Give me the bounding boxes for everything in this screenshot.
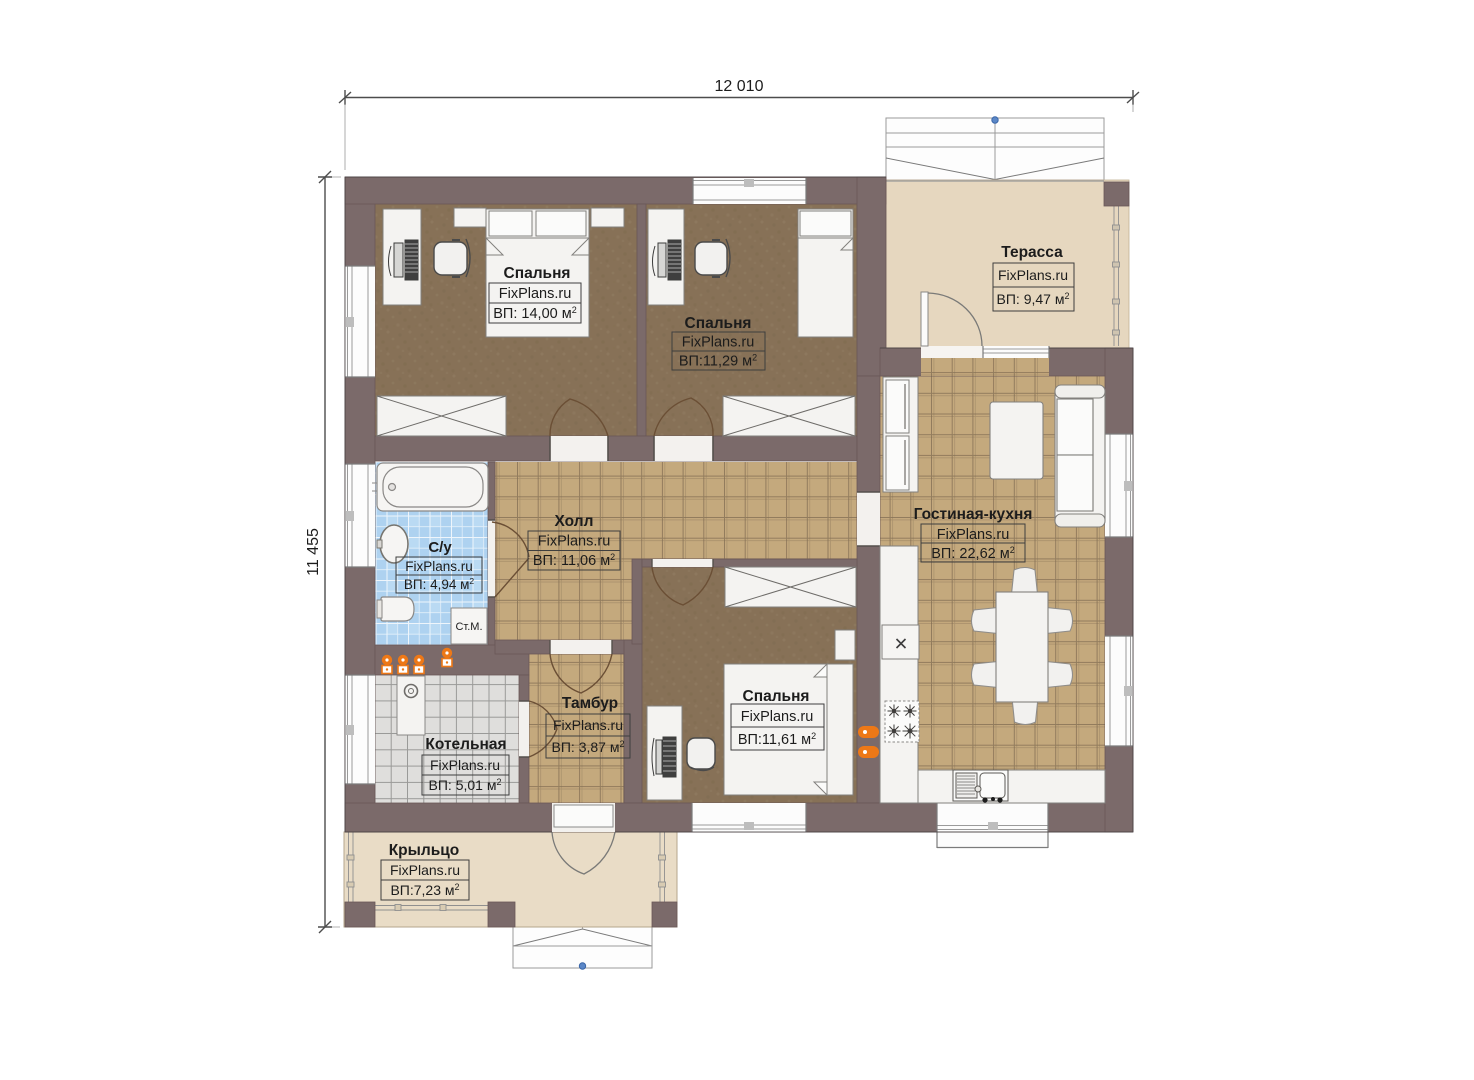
svg-text:ВП:11,29 м2: ВП:11,29 м2 (679, 353, 757, 370)
svg-text:FixPlans.ru: FixPlans.ru (390, 862, 460, 878)
svg-text:11 455: 11 455 (305, 528, 322, 576)
svg-text:ВП: 4,94 м2: ВП: 4,94 м2 (404, 576, 475, 592)
svg-text:Тамбур: Тамбур (562, 695, 618, 712)
svg-text:FixPlans.ru: FixPlans.ru (553, 717, 623, 733)
svg-text:Терасса: Терасса (1001, 244, 1063, 261)
svg-text:FixPlans.ru: FixPlans.ru (998, 267, 1068, 283)
svg-text:FixPlans.ru: FixPlans.ru (430, 757, 500, 773)
svg-text:Холл: Холл (555, 513, 594, 530)
svg-text:Спальня: Спальня (504, 265, 571, 282)
svg-text:Спальня: Спальня (685, 315, 752, 332)
svg-text:ВП: 14,00 м2: ВП: 14,00 м2 (493, 305, 576, 322)
svg-text:ВП:7,23 м2: ВП:7,23 м2 (390, 882, 459, 898)
svg-text:С/у: С/у (428, 539, 452, 556)
svg-text:Котельная: Котельная (425, 736, 506, 753)
svg-text:FixPlans.ru: FixPlans.ru (937, 527, 1010, 543)
svg-text:ВП:11,61 м2: ВП:11,61 м2 (738, 731, 816, 748)
svg-text:FixPlans.ru: FixPlans.ru (405, 559, 473, 574)
svg-text:ВП: 11,06 м2: ВП: 11,06 м2 (533, 552, 615, 569)
svg-text:12 010: 12 010 (715, 78, 764, 95)
svg-text:FixPlans.ru: FixPlans.ru (538, 534, 611, 550)
svg-text:Спальня: Спальня (743, 688, 810, 705)
svg-text:ВП: 22,62 м2: ВП: 22,62 м2 (931, 545, 1014, 562)
svg-text:Ст.М.: Ст.М. (455, 621, 482, 633)
svg-text:FixPlans.ru: FixPlans.ru (741, 709, 814, 725)
svg-text:ВП: 9,47 м2: ВП: 9,47 м2 (997, 291, 1070, 307)
svg-text:Гостиная-кухня: Гостиная-кухня (914, 506, 1033, 523)
svg-text:FixPlans.ru: FixPlans.ru (682, 335, 755, 351)
svg-text:FixPlans.ru: FixPlans.ru (499, 286, 572, 302)
svg-text:ВП: 5,01 м2: ВП: 5,01 м2 (429, 777, 502, 793)
svg-text:ВП: 3,87 м2: ВП: 3,87 м2 (552, 739, 625, 755)
svg-text:Крыльцо: Крыльцо (389, 842, 460, 859)
